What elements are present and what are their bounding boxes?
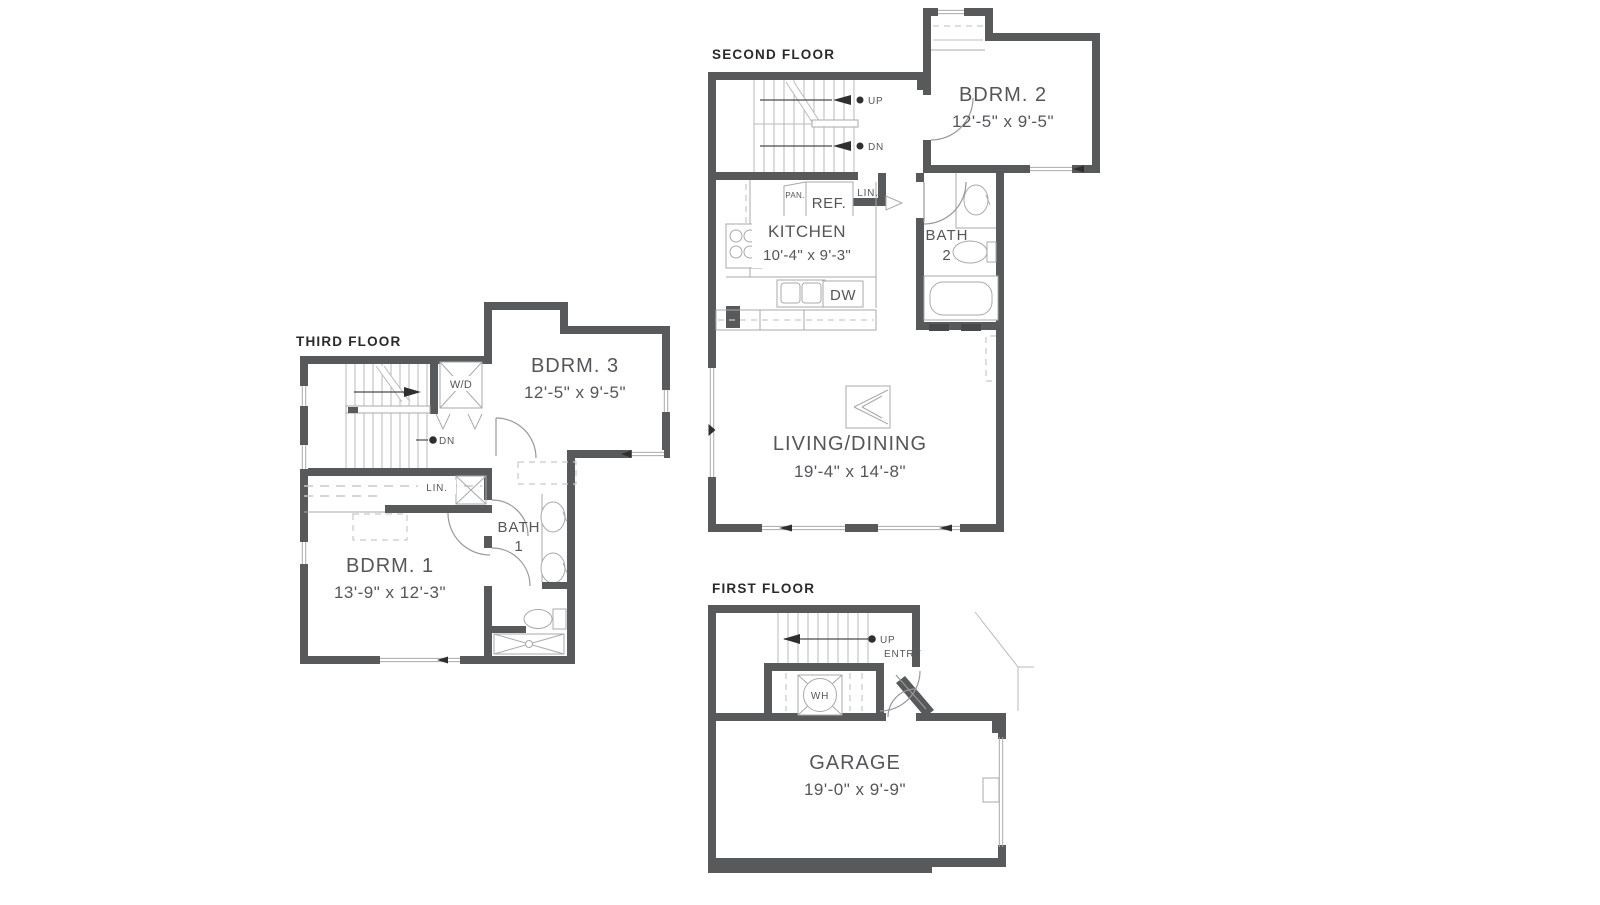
- bath2-number: 2: [942, 247, 951, 264]
- linen-label: LIN.: [426, 483, 448, 494]
- first-floor-stairs: [778, 613, 876, 663]
- third-floor-stairs: [346, 364, 437, 468]
- entry-label: ENTRY: [884, 649, 922, 660]
- washer-dryer-label: W/D: [450, 379, 472, 391]
- stairs-down-label: DN: [868, 142, 884, 153]
- garage-dims: 19'-0" x 9'-9": [804, 780, 906, 799]
- bdrm3-dims: 12'-5" x 9'-5": [524, 383, 626, 402]
- stairs-up-label: UP: [880, 635, 896, 646]
- living-dining-label: LIVING/DINING: [773, 433, 927, 455]
- third-floor-plan: THIRD FLOOR BDRM. 3 12'-5" x 9'-5" BDRM.…: [290, 290, 685, 680]
- pantry-label: PAN.: [785, 191, 804, 200]
- stairs-down-label: DN: [439, 436, 455, 447]
- bath1-label: BATH: [498, 519, 541, 536]
- first-floor-plan: FIRST FLOOR GARAGE 19'-0" x 9'-9" UP ENT…: [700, 575, 1110, 905]
- water-heater-label: WH: [811, 691, 829, 702]
- bdrm1-label: BDRM. 1: [346, 555, 434, 577]
- bdrm2-dims: 12'-5" x 9'-5": [952, 112, 1054, 131]
- second-floor-plan: SECOND FLOOR BDRM. 2 12'-5" x 9'-5" KITC…: [700, 0, 1110, 545]
- first-floor-title: FIRST FLOOR: [712, 581, 815, 596]
- first-floor-walls: [708, 605, 1006, 873]
- garage-features: [983, 737, 1003, 847]
- exterior-lines: [975, 612, 1034, 711]
- bath1-number: 1: [514, 538, 523, 555]
- floorplan-canvas: { "colors": { "wall": "#58595B", "title_…: [0, 0, 1600, 905]
- second-floor-title: SECOND FLOOR: [712, 47, 835, 62]
- bath2-fixtures: [924, 173, 998, 320]
- bath2-label: BATH: [926, 227, 969, 244]
- laundry-closet: [436, 362, 482, 429]
- dishwasher-label: DW: [830, 287, 856, 304]
- garage-label: GARAGE: [809, 752, 901, 774]
- refrigerator-label: REF.: [812, 195, 847, 212]
- living-dining-dims: 19'-4" x 14'-8": [794, 462, 906, 481]
- kitchen-dims: 10'-4" x 9'-3": [763, 247, 851, 264]
- second-floor-stairs: [754, 80, 864, 172]
- stairs-up-label: UP: [868, 96, 884, 107]
- living-fixtures: [846, 336, 996, 428]
- bdrm1-dims: 13'-9" x 12'-3": [334, 583, 446, 602]
- linen-arrow-icon: [886, 196, 902, 210]
- kitchen-label: KITCHEN: [768, 222, 846, 241]
- third-floor-title: THIRD FLOOR: [296, 334, 401, 349]
- bdrm2-label: BDRM. 2: [959, 84, 1047, 106]
- bdrm3-label: BDRM. 3: [531, 355, 619, 377]
- linen2-label: LIN.: [857, 188, 879, 199]
- bedroom2-closet: [931, 26, 985, 50]
